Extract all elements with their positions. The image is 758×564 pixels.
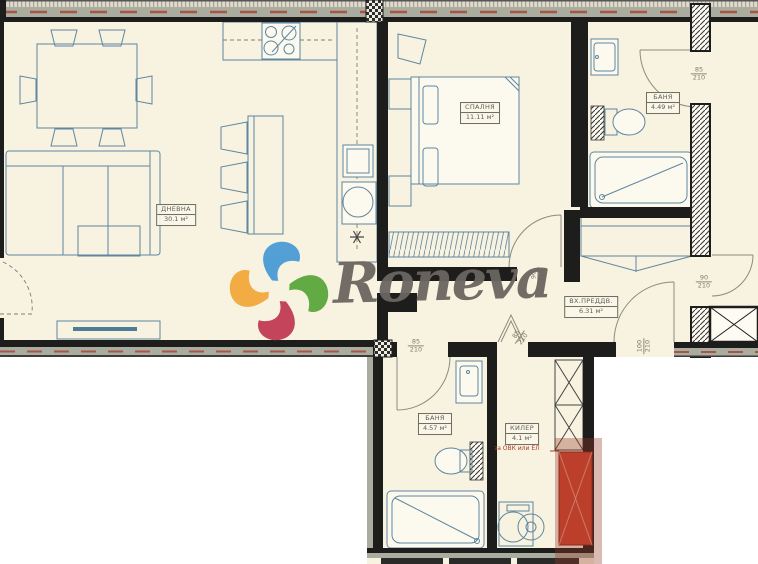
room-label-bedroom: СПАЛНЯ 11.11 м² <box>460 102 500 124</box>
hvac-annotation: за ОВК или ЕЛ <box>494 445 540 452</box>
dimension-bathroom1-door: 85210 <box>691 66 707 81</box>
floor-plan-page: ДНЕВНА 30.1 м² СПАЛНЯ 11.11 м² БАНЯ 4.49… <box>0 0 758 564</box>
bed <box>411 77 519 184</box>
room-label-living: ДНЕВНА 30.1 м² <box>156 204 196 226</box>
room-label-bathroom2: БАНЯ 4.57 м² <box>418 413 452 435</box>
toilet <box>435 448 467 474</box>
room-label-bathroom1: БАНЯ 4.49 м² <box>646 92 680 114</box>
red-zone <box>550 438 602 564</box>
brand-wordmark: Roneva <box>332 250 550 312</box>
dimension-entrance-door: 100210 <box>636 338 651 354</box>
dimension-bathroom2-door: 85210 <box>408 338 424 353</box>
dimension-right-room-door: 90210 <box>696 274 712 289</box>
bathtub <box>387 491 484 548</box>
shaft-box <box>710 307 758 342</box>
room-label-entry-hall: ВХ.ПРЕДДВ. 6.31 м² <box>564 296 618 318</box>
bathtub <box>590 152 692 208</box>
room-label-closet: КИЛЕР 4.1 м² <box>505 423 539 445</box>
